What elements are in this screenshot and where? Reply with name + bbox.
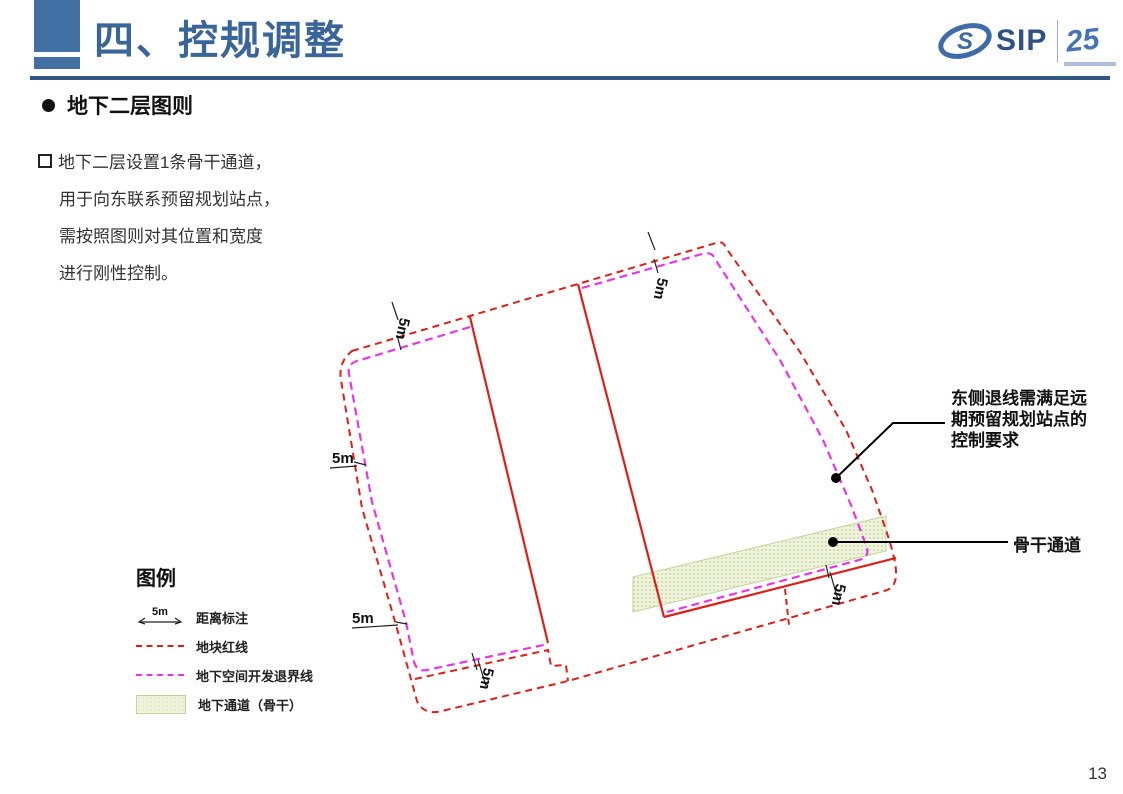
legend-label: 地块红线 — [196, 637, 248, 656]
red-dashed-line-icon — [136, 645, 184, 647]
plot-red-line-outer — [340, 242, 896, 712]
dimension-arrow-icon: 5m — [136, 606, 184, 628]
legend-label: 地下空间开发退界线 — [196, 666, 313, 685]
callout-east-line: 东侧退线需满足远 — [951, 388, 1101, 409]
legend-item-setback-line: 地下空间开发退界线 — [136, 665, 356, 685]
svg-text:5m: 5m — [152, 606, 168, 618]
parcel-divider-left — [470, 317, 548, 643]
dim-5m-top-right: 5m — [650, 276, 671, 301]
slide: 四、控规调整 S SIP 25 地下二层图则 地下二层设置1条骨干通道， 用于向… — [0, 0, 1123, 794]
legend: 图例 5m 距离标注 地块红线 地下空间开发退界线 地下通道（骨干） — [136, 562, 356, 723]
dim-5m-left: 5m — [332, 450, 354, 467]
dim-5m-bottom-middle: 5m — [476, 666, 497, 691]
setback-line-left-parcel — [349, 327, 548, 670]
callout-backbone-channel: 骨干通道 — [1013, 531, 1081, 556]
callout-east-line: 控制要求 — [951, 430, 1101, 451]
legend-item-plot-red-line: 地块红线 — [136, 636, 356, 656]
legend-title: 图例 — [136, 562, 356, 591]
magenta-dashed-line-icon — [136, 674, 184, 676]
page-number: 13 — [1088, 764, 1107, 784]
green-hatch-icon — [136, 695, 186, 714]
legend-label: 地下通道（骨干） — [198, 695, 302, 714]
dim-5m-top-left: 5m — [392, 316, 413, 341]
dimension-ticks — [330, 232, 838, 686]
legend-label: 距离标注 — [196, 608, 248, 627]
dim-5m-bottom-right: 5m — [828, 582, 849, 607]
callout-east-line: 期预留规划站点的 — [951, 409, 1101, 430]
legend-item-underground-channel: 地下通道（骨干） — [136, 694, 356, 714]
callout-east-leader-line — [836, 423, 945, 478]
legend-item-dimension: 5m 距离标注 — [136, 607, 356, 627]
dimension-labels: 5m 5m 5m 5m 5m 5m — [332, 276, 849, 691]
callout-east-setback: 东侧退线需满足远 期预留规划站点的 控制要求 — [951, 388, 1101, 451]
parcel-divider-right — [578, 284, 664, 617]
